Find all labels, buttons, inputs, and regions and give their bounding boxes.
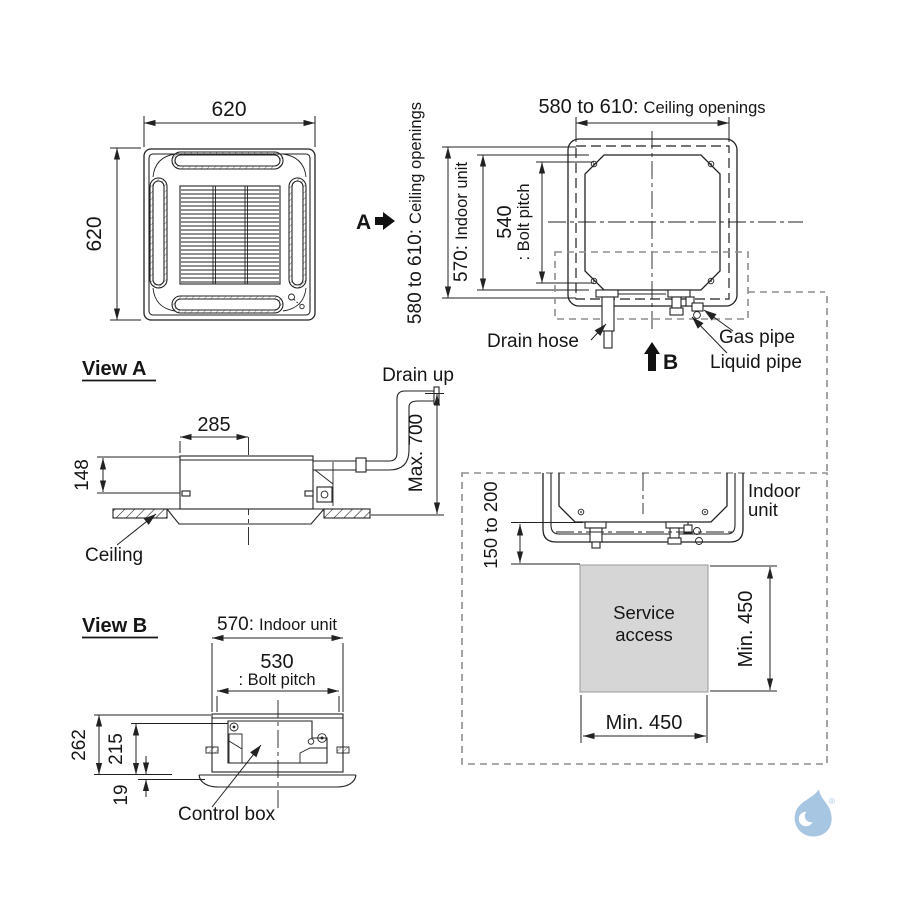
bolt-pitch-text: : Bolt pitch bbox=[238, 671, 315, 689]
indoor-unit-dim: 570:Indoor unit bbox=[217, 614, 337, 635]
dim-150-200: 150 to 200 bbox=[480, 481, 501, 568]
ceiling-pointer bbox=[117, 514, 156, 545]
dim-min450-side: Min. 450 bbox=[735, 591, 757, 668]
unit-body-section bbox=[180, 456, 313, 509]
ceiling-slab-right bbox=[324, 509, 370, 518]
piping-zone-dashed bbox=[555, 252, 748, 319]
gas-pipe-label: Gas pipe bbox=[719, 327, 795, 348]
indoor-unit-label-line2: unit bbox=[748, 499, 778, 520]
dim-min450-bottom: Min. 450 bbox=[606, 712, 683, 734]
view-b-letter: B bbox=[663, 351, 678, 374]
drop-crescent bbox=[805, 810, 817, 822]
body-clip bbox=[305, 491, 313, 496]
drain-up-label: Drain up bbox=[382, 365, 454, 386]
installation-space-dashed-extension bbox=[748, 292, 827, 471]
ceiling-opening-plan-view: 580 to 610:Ceiling openings 570:Indoor u… bbox=[405, 96, 803, 373]
installation-diagram: 620 620 bbox=[0, 0, 900, 900]
dim-215: 215 bbox=[106, 733, 127, 765]
view-b-direction-marker: B bbox=[644, 342, 678, 374]
indoor-unit-frame bbox=[585, 155, 720, 290]
service-access-line1: Service bbox=[613, 602, 675, 623]
dim-extension-lines bbox=[138, 775, 205, 780]
dim-285: 285 bbox=[197, 414, 230, 436]
hanger-bracket-detail bbox=[315, 462, 333, 506]
ceiling-openings-title: 580 to 610:Ceiling openings bbox=[538, 96, 765, 118]
up-arrow-icon bbox=[644, 342, 660, 371]
drain-hose-label: Drain hose bbox=[487, 331, 579, 352]
control-box-label: Control box bbox=[178, 804, 276, 825]
corner-trims bbox=[153, 154, 306, 311]
dim-max700: Max. 700 bbox=[406, 414, 427, 492]
dim-extension-lines bbox=[110, 148, 141, 320]
refrigerant-pipes-drawing bbox=[668, 290, 703, 318]
dim-extension-lines bbox=[511, 523, 583, 565]
side-tab bbox=[337, 747, 349, 753]
view-a-section: View A 285 Drain up Max. 700 148 bbox=[72, 358, 454, 566]
dim-262: 262 bbox=[69, 729, 90, 761]
decoration-panel-section bbox=[199, 775, 356, 787]
indoor-unit-dim: 570:Indoor unit bbox=[451, 162, 472, 282]
view-b-heading: View B bbox=[82, 615, 147, 637]
dim-extension-lines bbox=[576, 117, 729, 142]
panel-width-dim: 620 bbox=[211, 98, 246, 121]
registered-mark: ® bbox=[829, 797, 835, 806]
right-arrow-icon bbox=[375, 212, 395, 230]
dim-19: 19 bbox=[111, 784, 132, 805]
liquid-pipe-label: Liquid pipe bbox=[710, 352, 802, 373]
decoration-panel-section bbox=[167, 509, 324, 524]
panel-plan-view: 620 620 bbox=[83, 98, 315, 320]
water-drop-logo: ® bbox=[795, 789, 835, 837]
view-a-direction-marker: A bbox=[356, 211, 395, 234]
view-b-section: View B 570:Indoor unit 530 : Bolt pitch … bbox=[69, 614, 356, 825]
panel-inner-frame bbox=[149, 154, 310, 315]
ceiling-slab-left bbox=[113, 509, 167, 518]
air-outlet-slots bbox=[150, 152, 306, 313]
view-a-letter: A bbox=[356, 211, 371, 234]
bolt-pitch-text: : Bolt pitch bbox=[515, 183, 533, 260]
panel-height-dim: 620 bbox=[83, 216, 106, 251]
bolt-pitch-num: 530 bbox=[260, 651, 293, 673]
view-a-heading: View A bbox=[82, 358, 146, 380]
side-ceiling-openings-dim: 580 to 610:Ceiling openings bbox=[405, 102, 426, 324]
installation-diagram-page: 620 620 bbox=[0, 0, 900, 900]
ceiling-label: Ceiling bbox=[85, 545, 143, 566]
dim-extension-lines bbox=[97, 457, 180, 493]
service-access-line2: access bbox=[615, 624, 673, 645]
body-clip bbox=[182, 491, 190, 496]
bolt-pitch-num: 540 bbox=[494, 205, 516, 238]
dim-148: 148 bbox=[72, 459, 93, 491]
indoor-unit-partial-plan bbox=[543, 473, 743, 548]
hanger-brackets bbox=[591, 161, 714, 284]
side-tab bbox=[206, 747, 218, 753]
indoor-unit-label-line1: Indoor bbox=[748, 480, 800, 501]
ceiling-opening-dashed bbox=[576, 146, 729, 299]
intake-grille bbox=[180, 186, 280, 284]
